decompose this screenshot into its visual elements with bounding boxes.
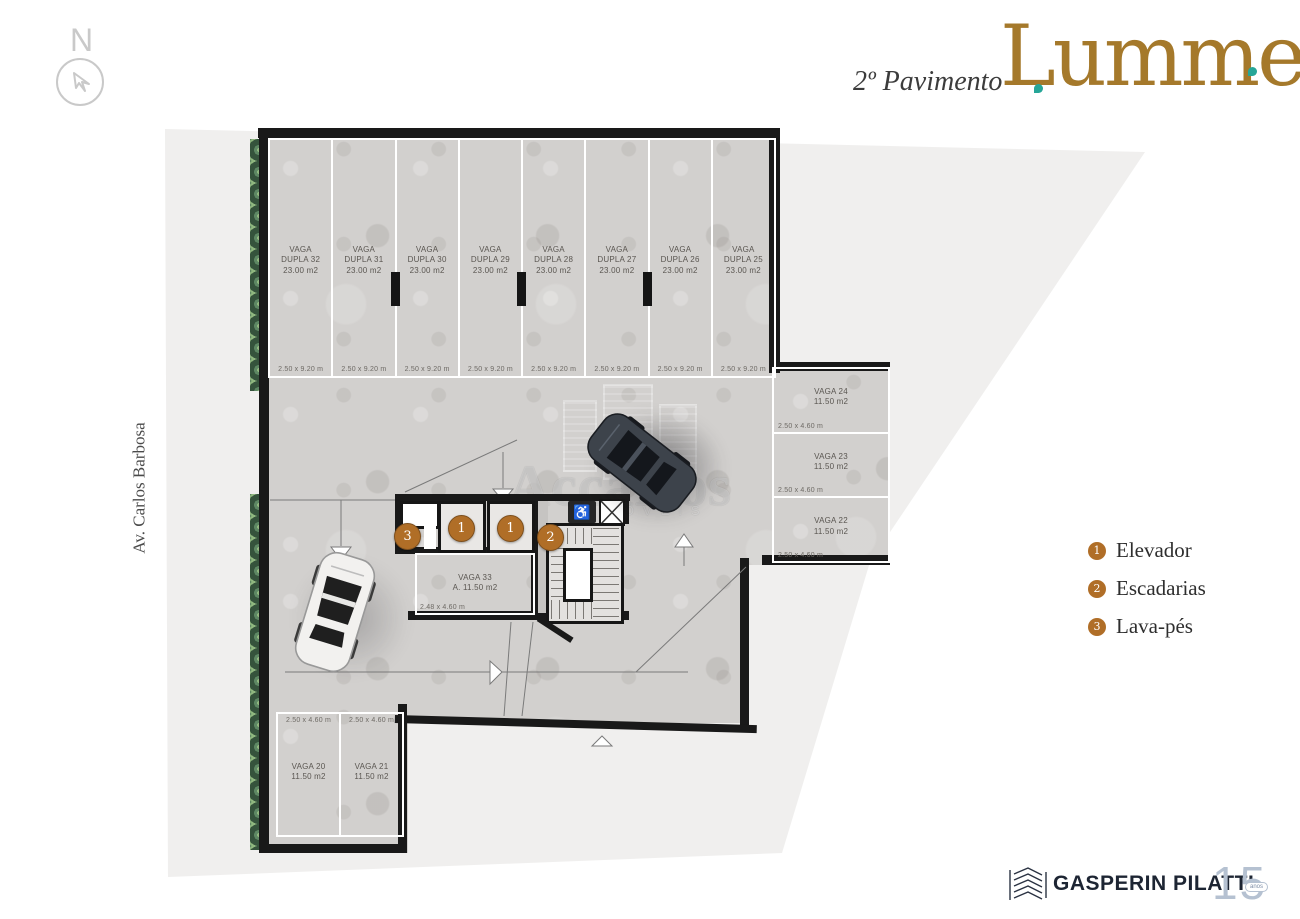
stair-core-wall [563,548,593,602]
north-label: N [70,22,93,59]
stall-vaga-dupla-25: VAGADUPLA 2523.00 m2 2.50 x 9.20 m [713,140,774,376]
wall-stub [391,272,400,306]
stall-vaga-21: 2.50 x 4.60 m VAGA 2111.50 m2 [341,714,402,835]
legend-item-stairs: 2 Escadarias [1088,576,1206,601]
stall-top-row: VAGADUPLA 3223.00 m2 2.50 x 9.20 m VAGAD… [268,138,776,378]
legend-item-elevator: 1 Elevador [1088,538,1206,563]
brand-accent-dot [1034,84,1043,93]
builder-logo-icon [1008,862,1048,911]
stairs-bottom-flight [551,600,593,619]
wall-right-lower [740,558,749,726]
stall-bottom-row: 2.50 x 4.60 m VAGA 2011.50 m2 2.50 x 4.6… [276,712,404,837]
brand-accent-dot [1248,67,1257,76]
marker-stairs: 2 [537,524,564,551]
legend-num: 2 [1088,580,1106,598]
marker-lava-pes: 3 [394,523,421,550]
wall-top [258,128,780,138]
legend-label: Escadarias [1116,576,1206,601]
room-lava-pes-access [424,523,436,549]
stall-vaga-dupla-32: VAGADUPLA 3223.00 m2 2.50 x 9.20 m [270,140,333,376]
legend-num: 3 [1088,618,1106,636]
brand-logo: Lumme [1000,14,1300,98]
street-label: Av. Carlos Barbosa [130,401,152,576]
legend: 1 Elevador 2 Escadarias 3 Lava-pés [1088,538,1206,639]
wheelchair-icon: ♿ [568,501,596,523]
stall-vaga-22: VAGA 2211.50 m2 2.50 x 4.60 m [774,498,888,561]
floor-label: 2º Pavimento [853,66,1002,98]
legend-label: Elevador [1116,538,1192,563]
stall-vaga-23: VAGA 2311.50 m2 2.50 x 4.60 m [774,434,888,499]
stall-vaga-dupla-30: VAGADUPLA 3023.00 m2 2.50 x 9.20 m [397,140,460,376]
wall-stub [643,272,652,306]
stairs-left-flight [551,548,563,598]
marker-elevator-2: 1 [497,515,524,542]
stall-vaga-dupla-31: VAGADUPLA 3123.00 m2 2.50 x 9.20 m [333,140,396,376]
wall-stub [517,272,526,306]
stall-vaga-dupla-28: VAGADUPLA 2823.00 m2 2.50 x 9.20 m [523,140,586,376]
floorplan-page: Accarlos IMÓVEIS VAGADUPLA 3223.00 m2 2.… [0,0,1300,919]
legend-num: 1 [1088,542,1106,560]
wall-bottomblock-bottom [259,844,407,853]
marker-elevator-1: 1 [448,515,475,542]
stall-vaga-33: VAGA 33A. 11.50 m2 2.48 x 4.60 m [415,553,535,615]
stall-vaga-20: 2.50 x 4.60 m VAGA 2011.50 m2 [278,714,341,835]
stall-vaga-24: VAGA 2411.50 m2 2.50 x 4.60 m [774,369,888,434]
stall-vaga-dupla-26: VAGADUPLA 2623.00 m2 2.50 x 9.20 m [650,140,713,376]
legend-item-footwash: 3 Lava-pés [1088,614,1206,639]
builder-years-label: anos [1245,882,1268,892]
stall-vaga-dupla-29: VAGADUPLA 2923.00 m2 2.50 x 9.20 m [460,140,523,376]
stall-right-column: VAGA 2411.50 m2 2.50 x 4.60 m VAGA 2311.… [772,367,890,563]
legend-label: Lava-pés [1116,614,1193,639]
stall-vaga-dupla-27: VAGADUPLA 2723.00 m2 2.50 x 9.20 m [586,140,649,376]
north-arrow-icon [56,58,104,106]
stairs-right-flight [593,528,619,619]
